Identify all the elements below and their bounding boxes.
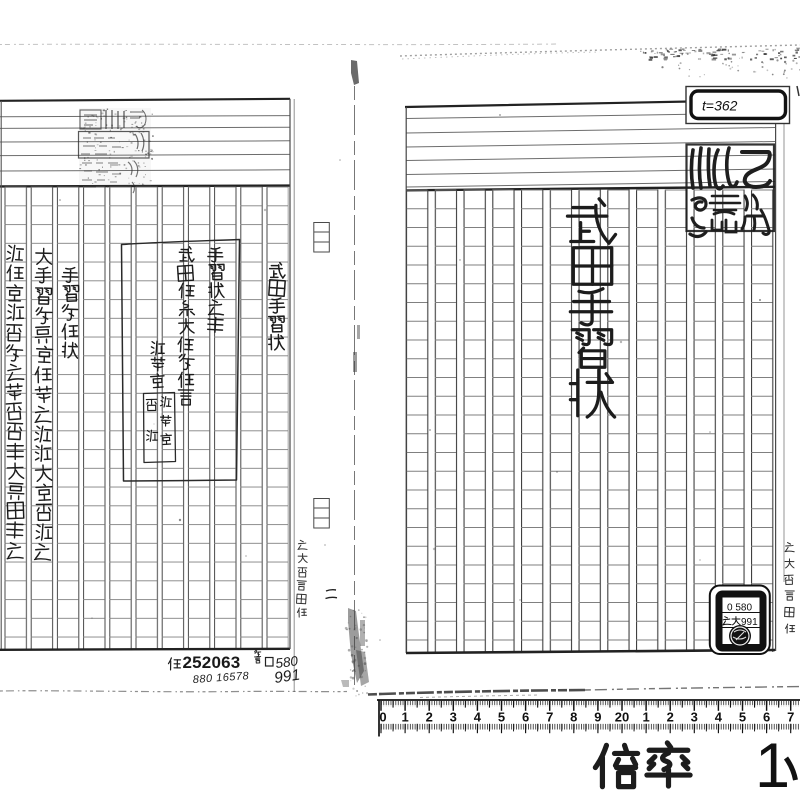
svg-text:6: 6 bbox=[522, 709, 529, 724]
svg-text:7: 7 bbox=[787, 709, 794, 724]
svg-text:0: 0 bbox=[379, 709, 386, 724]
svg-text:2: 2 bbox=[667, 709, 674, 724]
svg-text:1: 1 bbox=[401, 709, 408, 724]
svg-text:20: 20 bbox=[615, 709, 629, 724]
svg-text:7: 7 bbox=[546, 709, 553, 724]
svg-text:5: 5 bbox=[498, 709, 505, 724]
svg-text:t=362: t=362 bbox=[702, 98, 738, 114]
svg-text:252063: 252063 bbox=[183, 653, 241, 672]
svg-text:0 580: 0 580 bbox=[727, 603, 752, 614]
svg-text:5: 5 bbox=[739, 709, 746, 724]
svg-text:4: 4 bbox=[715, 709, 723, 724]
svg-text:8: 8 bbox=[570, 709, 577, 724]
svg-text:2: 2 bbox=[426, 709, 433, 724]
svg-text:1: 1 bbox=[642, 709, 649, 724]
svg-text:991: 991 bbox=[273, 667, 301, 687]
svg-text:4: 4 bbox=[474, 709, 482, 724]
svg-text:3: 3 bbox=[450, 709, 457, 724]
svg-text:9: 9 bbox=[594, 709, 601, 724]
svg-text:1: 1 bbox=[755, 731, 790, 800]
svg-text:3: 3 bbox=[691, 709, 698, 724]
svg-text:6: 6 bbox=[763, 709, 770, 724]
